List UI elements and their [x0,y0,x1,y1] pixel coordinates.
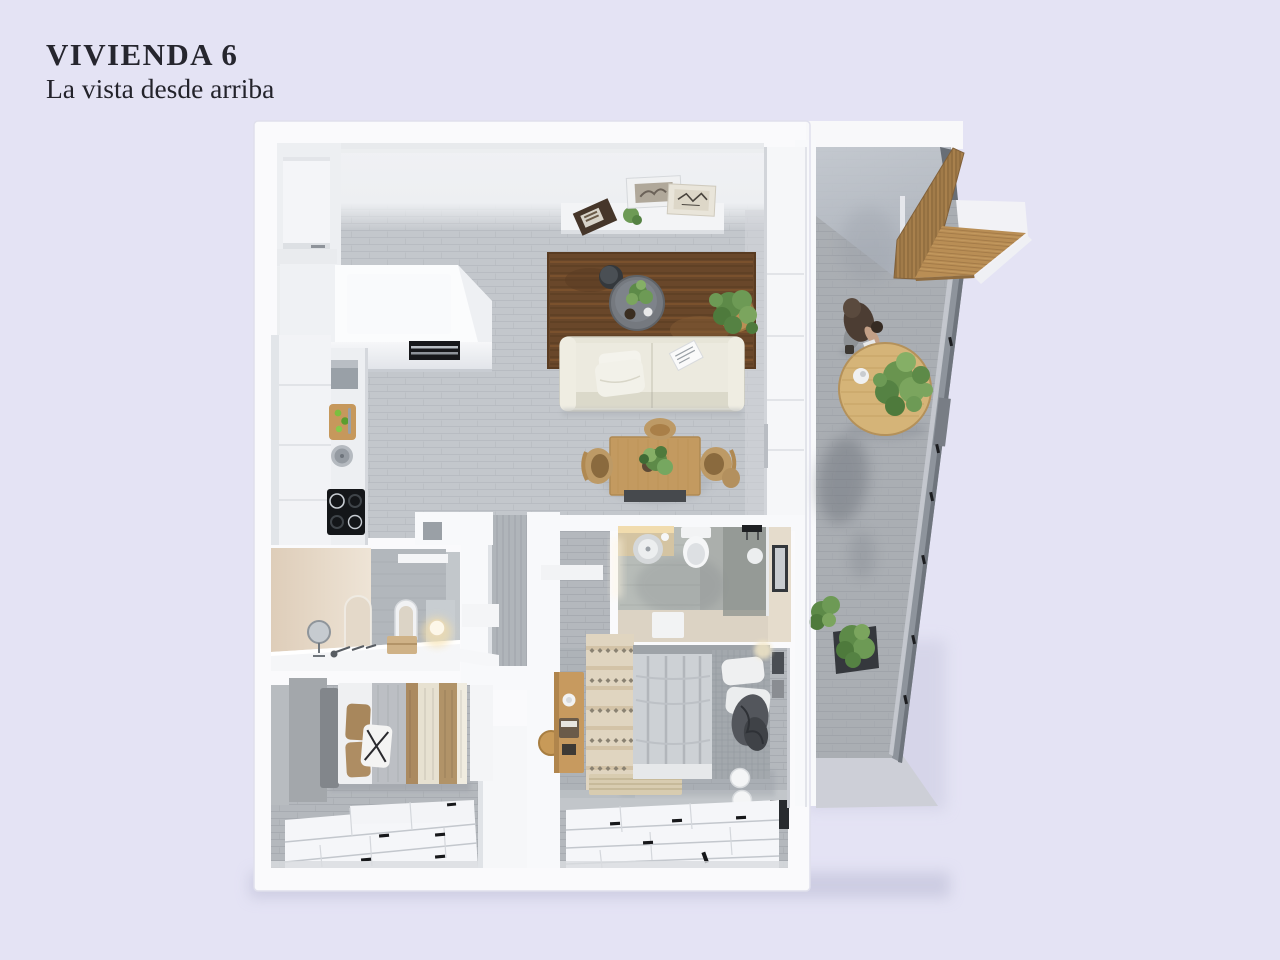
svg-text:La vista desde arriba: La vista desde arriba [46,73,274,104]
svg-text:VIVIENDA 6: VIVIENDA 6 [46,37,238,72]
